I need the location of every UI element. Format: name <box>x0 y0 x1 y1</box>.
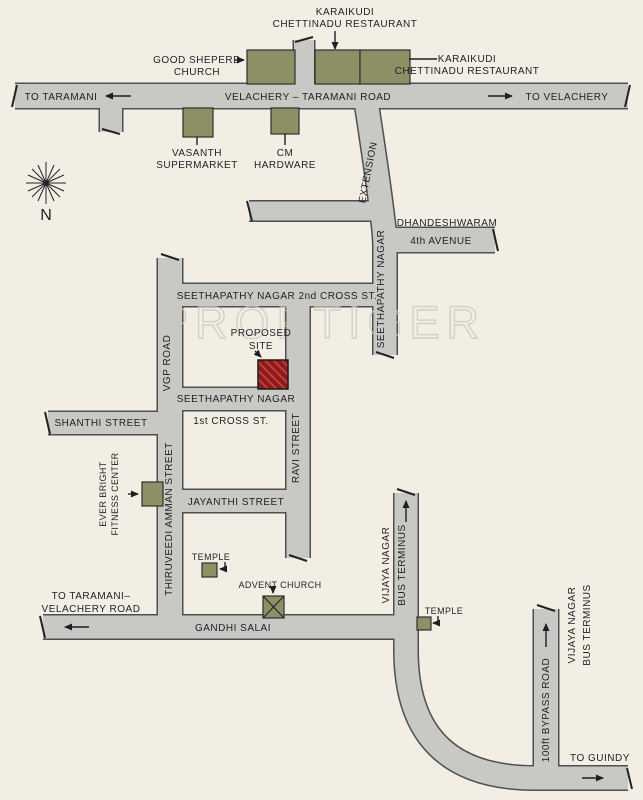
compass-north-label: N <box>40 207 52 224</box>
karaikudi-right-label-line1: KARAIKUDI <box>438 54 496 65</box>
to-taramani-velachery-label-line1: TO TARAMANI– <box>52 591 131 602</box>
good-sheperd-church-building <box>247 50 295 84</box>
vgp-road-label: VGP ROAD <box>162 335 173 392</box>
good-sheperd-label-line2: CHURCH <box>174 67 220 78</box>
advent-church-label: ADVENT CHURCH <box>238 580 321 590</box>
ravi-street-label: RAVI STREET <box>291 413 302 483</box>
bypass-road-label: 100ft BYPASS ROAD <box>541 658 552 762</box>
temple-1-building <box>202 563 217 577</box>
to-taramani-velachery-label-line2: VELACHERY ROAD <box>42 604 141 615</box>
compass-rose <box>26 162 66 204</box>
proposed-site-label-line1: PROPOSED <box>231 328 292 339</box>
location-map-page: PROPTIGER KARAIKUDI CHETTINADU RESTAURAN… <box>0 0 643 800</box>
bus-terminus-mid-label: BUS TERMINUS <box>397 524 408 605</box>
proptiger-watermark: PROPTIGER <box>158 297 486 348</box>
first-cross-label-line2: 1st CROSS ST. <box>193 416 268 427</box>
road-fills <box>15 40 628 778</box>
cm-hardware-label-line1: CM <box>277 148 294 159</box>
to-guindy-label: TO GUINDY <box>570 753 630 764</box>
cm-hardware-label-line2: HARDWARE <box>254 160 316 171</box>
seethapathy-nagar-ext-label: SEETHAPATHY NAGAR <box>376 230 387 349</box>
vijaya-nagar-mid-label: VIJAYA NAGAR <box>381 527 392 604</box>
ever-bright-label-line2: FITNESS CENTER <box>110 452 120 535</box>
vasanth-label-line1: VASANTH <box>172 148 222 159</box>
cm-hardware-building <box>271 108 299 134</box>
vasanth-label-line2: SUPERMARKET <box>156 160 238 171</box>
karaikudi-right-label-line2: CHETTINADU RESTAURANT <box>395 66 540 77</box>
fourth-avenue-label: 4th AVENUE <box>410 236 472 247</box>
jayanthi-street-label: JAYANTHI STREET <box>188 497 285 508</box>
ever-bright-fitness-building <box>142 482 163 506</box>
shanthi-street-label: SHANTHI STREET <box>54 418 147 429</box>
velachery-taramani-road-label: VELACHERY – TARAMANI ROAD <box>225 92 391 103</box>
first-cross-label-line1: SEETHAPATHY NAGAR <box>177 394 296 405</box>
bus-terminus-right-label: BUS TERMINUS <box>582 584 593 665</box>
proposed-site-label-line2: SITE <box>249 341 273 352</box>
vijaya-nagar-right-label: VIJAYA NAGAR <box>567 587 578 664</box>
good-sheperd-label-line1: GOOD SHEPERD <box>153 55 241 66</box>
temple-2-label: TEMPLE <box>425 606 463 616</box>
to-taramani-label: TO TARAMANI <box>25 92 98 103</box>
temple-2-building <box>417 617 431 630</box>
karaikudi-top-label-line2: CHETTINADU RESTAURANT <box>273 19 418 30</box>
karaikudi-restaurant-building-left <box>315 50 360 84</box>
leaders-and-arrows <box>65 31 603 778</box>
vasanth-supermarket-building <box>183 108 213 137</box>
proposed-site-marker <box>258 360 288 389</box>
karaikudi-top-label-line1: KARAIKUDI <box>316 7 374 18</box>
location-map: PROPTIGER KARAIKUDI CHETTINADU RESTAURAN… <box>0 0 643 800</box>
ever-bright-label-line1: EVER BRIGHT <box>98 461 108 527</box>
second-cross-label: SEETHAPATHY NAGAR 2nd CROSS ST. <box>177 291 378 302</box>
thiruveedi-amman-label: THIRUVEEDI AMMAN STREET <box>164 442 175 596</box>
temple-1-leader-arrow <box>220 562 225 569</box>
to-velachery-label: TO VELACHERY <box>526 92 609 103</box>
road-vijaya-curve <box>406 493 628 778</box>
temple-2-leader-arrow <box>433 616 438 623</box>
temple-1-label: TEMPLE <box>192 552 230 562</box>
dhandeshwaram-label: DHANDESHWARAM <box>397 218 498 229</box>
gandhi-salai-label: GANDHI SALAI <box>195 623 271 634</box>
